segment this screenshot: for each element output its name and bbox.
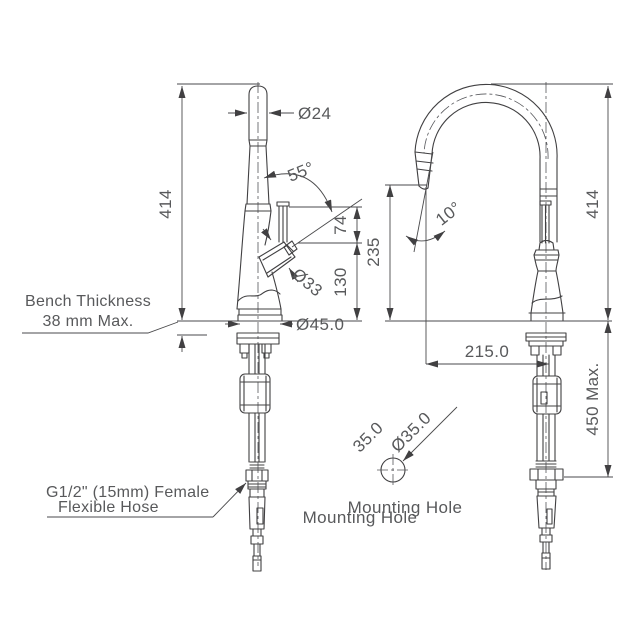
mounting-dia-label-a: 35.0 bbox=[349, 418, 387, 456]
hose-note-line2: Flexible Hose bbox=[58, 499, 159, 516]
mounting-dia-label-b: Ø35.0 bbox=[387, 408, 435, 456]
front-view-faucet-outline bbox=[415, 82, 566, 570]
bench-note-line2: 38 mm Max. bbox=[42, 313, 133, 330]
under-bench-depth-label: 450 Max. bbox=[583, 362, 602, 435]
front-height-label: 414 bbox=[583, 189, 602, 219]
front-view-dimensions: 235 10° 215.0 414 450 Max. bbox=[364, 84, 613, 477]
side-height-label: 414 bbox=[156, 189, 175, 219]
spout-diameter-label: Ø24 bbox=[298, 104, 331, 123]
lever-length-label: 74 bbox=[331, 215, 350, 235]
base-diameter-label: Ø45.0 bbox=[296, 315, 344, 334]
mounting-hole-detail: 35.0 Ø35.0 Mounting Hole Mounting Hole bbox=[303, 407, 463, 527]
gooseneck-center-line bbox=[424, 94, 548, 159]
side-view-dimensions: 414 Ø24 55° 74 130 Ø33 Ø bbox=[22, 84, 362, 517]
mounting-caption-b: Mounting Hole bbox=[303, 508, 418, 527]
faucet-technical-drawing-page: 414 Ø24 55° 74 130 Ø33 Ø bbox=[0, 0, 640, 640]
handle-angle-label: 55° bbox=[285, 158, 317, 186]
front-view: 235 10° 215.0 414 450 Max. 35.0 Ø35.0 Mo… bbox=[303, 82, 613, 570]
technical-drawing-canvas: 414 Ø24 55° 74 130 Ø33 Ø bbox=[0, 0, 640, 640]
handle-diameter-label: Ø33 bbox=[288, 265, 326, 301]
side-view-faucet-outline bbox=[237, 82, 297, 571]
spout-reach-label: 215.0 bbox=[465, 342, 510, 361]
side-view: 414 Ø24 55° 74 130 Ø33 Ø bbox=[22, 82, 362, 571]
outlet-height-label: 235 bbox=[364, 237, 383, 267]
handle-height-label: 130 bbox=[331, 267, 350, 297]
bench-note-line1: Bench Thickness bbox=[25, 293, 151, 310]
spray-angle-label: 10° bbox=[432, 198, 465, 230]
